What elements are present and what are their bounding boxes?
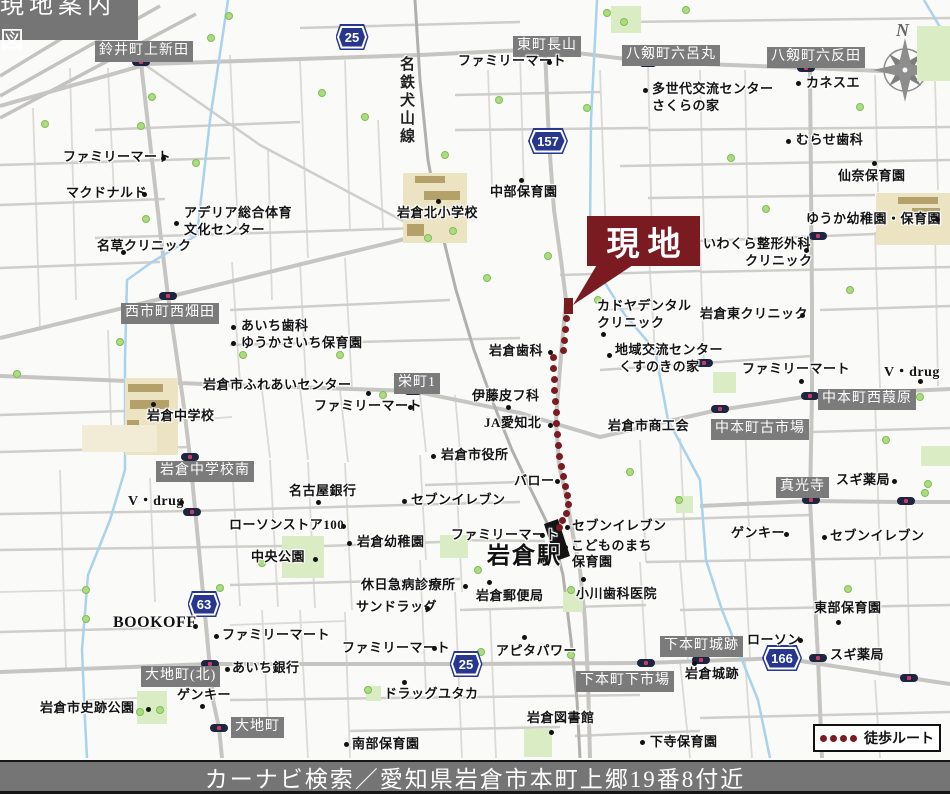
poi-label: 岩倉市ふれあいセンター [203,378,352,393]
tree-icon [82,586,90,594]
poi-dot [800,313,805,318]
poi-dot [214,634,219,639]
walk-route-dot [561,337,568,344]
poi-dot [555,479,560,484]
poi-label: 岩倉幼稚園 [357,535,425,550]
poi-dot [313,557,318,562]
legend-walk-dots [820,735,857,742]
poi-label: クリニック [745,254,813,269]
walk-route-dot [556,524,563,531]
poi-dot [161,156,166,161]
poi-label: ドラッグユタカ [384,687,479,702]
poi-label: ファミリーマート [742,362,850,377]
poi-dot [918,379,923,384]
district-label: 大地町(北) [141,666,220,687]
walk-route-dot [564,492,571,499]
poi-dot [640,740,645,745]
tree-icon [544,252,552,260]
traffic-signal-icon [159,292,177,300]
tree-icon [361,113,369,121]
poi-label: BOOKOFF [113,614,197,632]
poi-label: くすのきの家 [619,360,700,375]
railway-label: 名鉄犬山線 [396,56,417,146]
poi-dot [563,545,568,550]
poi-dot [366,391,371,396]
poi-label: JA愛知北 [484,416,541,431]
school-building [898,197,938,204]
tree-icon [137,122,145,130]
walk-route-dot [556,453,563,460]
school-building [128,384,163,392]
poi-dot [142,192,147,197]
poi-dot [784,532,789,537]
tree-icon [924,480,932,488]
poi-dot [402,499,407,504]
traffic-signal-icon [897,497,915,505]
district-label: 下本町城跡 [660,636,743,657]
tree-icon [318,89,326,97]
district-label: 栄町1 [394,373,440,394]
district-label: 西市町西畑田 [121,303,219,324]
map-canvas: 251576325166鈴井町上新田東町長山八剱町六呂丸八剱町六反田西市町西畑田… [0,0,950,794]
poi-label: 下寺保育園 [650,735,718,750]
tree-icon [82,615,90,623]
district-label: 八剱町六呂丸 [622,45,720,66]
poi-label: あいち歯科 [241,319,309,334]
school-building [415,176,445,183]
poi-dot [892,479,897,484]
route-shield: 157 [528,128,568,154]
generated-map-items: 251576325166鈴井町上新田東町長山八剱町六呂丸八剱町六反田西市町西畑田… [0,0,950,760]
poi-dot [872,161,877,166]
poi-label: ファミリーマート [314,399,422,414]
poi-label: 文化センター [184,223,265,238]
park-area [921,446,950,466]
school-building [424,191,460,200]
poi-dot [463,584,468,589]
poi-label: 岩倉中学校 [147,409,215,424]
walk-route-dot [565,501,572,508]
poi-label: 岩倉歯科 [489,344,543,359]
walk-route-dot [553,420,560,427]
tree-icon [583,104,591,112]
traffic-signal-icon [809,232,827,240]
tree-icon [620,18,628,26]
poi-label: スギ薬局 [830,648,884,663]
poi-label: 岩倉城跡 [685,667,739,682]
poi-label: いわくら整形外科 [703,237,811,252]
poi-dot [607,353,612,358]
tree-icon [844,585,852,593]
poi-label: 中央公園 [251,550,305,565]
poi-label: カネスエ [806,76,860,91]
poi-label: 東部保育園 [814,601,882,616]
walk-route-dot [563,510,570,517]
poi-dot [796,81,801,86]
walk-route-dot [560,473,567,480]
poi-dot [547,60,552,65]
walk-route-dot [550,354,557,361]
poi-dot [643,88,648,93]
poi-dot [519,178,524,183]
traffic-signal-icon [181,453,199,461]
station-label: 岩倉駅 [487,536,562,570]
poi-label: 仙奈保育園 [838,169,906,184]
tree-icon [682,6,690,14]
poi-label: 岩倉市史跡公園 [40,701,135,716]
tree-icon [207,34,215,42]
walk-route-dot [552,398,559,405]
poi-label: ファミリーマート [63,150,171,165]
poi-label: セブンイレブン [830,529,925,544]
poi-dot [231,325,236,330]
poi-dot [151,402,156,407]
poi-dot [549,730,554,735]
legend-label: 徒歩ルート [864,728,934,748]
poi-label: あいち銀行 [232,661,300,676]
poi-dot [225,667,230,672]
poi-dot [506,405,511,410]
tree-icon [882,436,890,444]
traffic-signal-icon [900,674,918,682]
tree-icon [846,286,854,294]
poi-label: アピタパワー [496,644,577,659]
school-area [82,425,157,452]
tree-icon [762,205,770,213]
poi-dot [121,250,126,255]
poi-dot [836,620,841,625]
district-label: 中本町西葭原 [818,389,916,410]
tree-icon [449,227,457,235]
walk-route-dot [553,409,560,416]
walk-route-dot [555,442,562,449]
poi-dot [402,680,407,685]
poi-label: 伊藤皮フ科 [472,389,540,404]
legend-dot [840,735,847,742]
poi-dot [200,704,205,709]
poi-label: ゆうかさいち保育園 [241,336,363,351]
route-shield: 166 [762,645,802,671]
walk-route-dot [551,387,558,394]
poi-dot [432,646,437,651]
poi-dot [822,535,827,540]
tree-icon [239,351,247,359]
school-building [407,224,424,236]
poi-label: V・drug [128,494,184,510]
poi-dot [316,500,321,505]
poi-dot [798,638,803,643]
tree-icon [474,566,482,574]
legend-dot [830,735,837,742]
poi-dot [487,580,492,585]
tree-icon [364,686,372,694]
route-shield: 25 [336,24,369,50]
route-shield: 25 [450,651,483,677]
poi-dot [431,454,436,459]
tree-icon [142,215,150,223]
tree-icon [921,489,929,497]
poi-label: さくらの家 [652,99,720,114]
walk-route-dot [550,365,557,372]
legend-dot [820,735,827,742]
poi-label: 名草クリニック [97,239,192,254]
walk-route-dot [563,315,570,322]
poi-label: アデリア総合体育 [184,206,292,221]
poi-label: 岩倉図書館 [527,711,595,726]
poi-dot [231,341,236,346]
walk-route-dot [554,431,561,438]
tree-icon [483,274,491,282]
walk-route-dot [560,347,567,354]
poi-label: セブンイレブン [411,493,506,508]
poi-dot [601,332,606,337]
caption-bar: カーナビ検索／愛知県岩倉市本町上郷19番8付近 [0,760,950,794]
tree-icon [495,96,503,104]
park-area [713,372,736,393]
tree-icon [441,151,449,159]
poi-label: マクドナルド [66,186,147,201]
tree-icon [675,496,683,504]
legend-dot [850,735,857,742]
poi-label: 地域交流センター [615,343,723,358]
tree-icon [156,706,164,714]
poi-dot [786,139,791,144]
poi-dot [799,379,804,384]
poi-label: 岩倉市商工会 [608,419,689,434]
district-label: 真光寺 [776,477,829,498]
poi-label: 岩倉市役所 [441,448,509,463]
poi-label: クリニック [597,316,665,331]
poi-label: V・drug [884,365,940,381]
tree-icon [424,234,432,242]
tree-icon [603,9,611,17]
tree-icon [727,154,735,162]
poi-dot [344,742,349,747]
tree-icon [567,586,575,594]
poi-label: ゲンキー [177,688,231,703]
poi-label: 多世代交流センター [652,82,774,97]
poi-label: カドヤデンタル [597,299,692,314]
poi-dot [436,199,441,204]
tree-icon [336,351,344,359]
poi-label: むらせ歯科 [796,133,863,148]
poi-label: ゆうか幼稚園・保育園 [806,212,941,227]
poi-dot [174,221,179,226]
poi-label: 小川歯科医院 [576,587,657,602]
map-title: 現地案内図 [0,0,138,40]
park-area [917,26,950,81]
traffic-signal-icon [711,405,729,413]
poi-label: 岩倉郵便局 [476,589,544,604]
site-callout-label: 現地 [607,217,689,265]
tree-icon [192,159,200,167]
poi-label: 南部保育園 [352,737,420,752]
tree-icon [916,393,924,401]
poi-label: 中部保育園 [490,185,558,200]
walk-route-dot [558,463,565,470]
poi-dot [341,524,346,529]
tree-icon [626,468,634,476]
poi-dot [408,405,413,410]
poi-label: スギ薬局 [836,473,890,488]
walk-route-dot [562,483,569,490]
compass-north-label: N [896,20,909,41]
district-label: 中本町古市場 [711,419,809,440]
walk-route-dot [559,517,566,524]
poi-label: ファミリーマート [222,628,330,643]
park-area [524,729,552,757]
traffic-signal-icon [637,659,655,667]
tree-icon [856,103,864,111]
tree-icon [225,12,233,20]
poi-label: バロー [514,474,555,489]
poi-label: こどものまち [571,539,652,554]
site-callout: 現地 [587,216,700,266]
poi-label: 岩倉北小学校 [397,206,478,221]
poi-dot [146,707,151,712]
traffic-signal-icon [183,508,201,516]
tree-icon [136,708,144,716]
poi-dot [565,525,570,530]
tree-icon [148,93,156,101]
tree-icon [41,120,49,128]
walk-route-dot [551,376,558,383]
poi-dot [581,577,586,582]
poi-dot [193,624,198,629]
traffic-signal-icon [801,392,819,400]
poi-label: ゲンキー [731,526,785,541]
poi-label: 岩倉東クリニック [700,307,808,322]
traffic-signal-icon [210,724,228,732]
walk-route-dot [562,326,569,333]
poi-label: 休日急病診療所 [361,578,456,593]
poi-dot [179,500,184,505]
poi-dot [692,661,697,666]
poi-label: セブンイレブン [572,519,667,534]
district-label: 大地町 [231,717,284,738]
district-label: 下本町下市場 [576,671,674,692]
poi-label: 名古屋銀行 [289,484,357,499]
district-label: 八剱町六反田 [767,47,865,68]
poi-label: ローソンストア100 [229,518,344,533]
traffic-signal-icon [809,654,827,662]
district-label: 岩倉中学校南 [156,461,254,482]
tree-icon [116,338,124,346]
poi-dot [522,635,527,640]
poi-dot [425,606,430,611]
walk-route-legend: 徒歩ルート [813,724,941,752]
poi-dot [935,217,940,222]
tree-icon [13,370,21,378]
route-shield: 63 [188,591,221,617]
poi-dot [347,541,352,546]
poi-label: 保育園 [572,555,613,570]
